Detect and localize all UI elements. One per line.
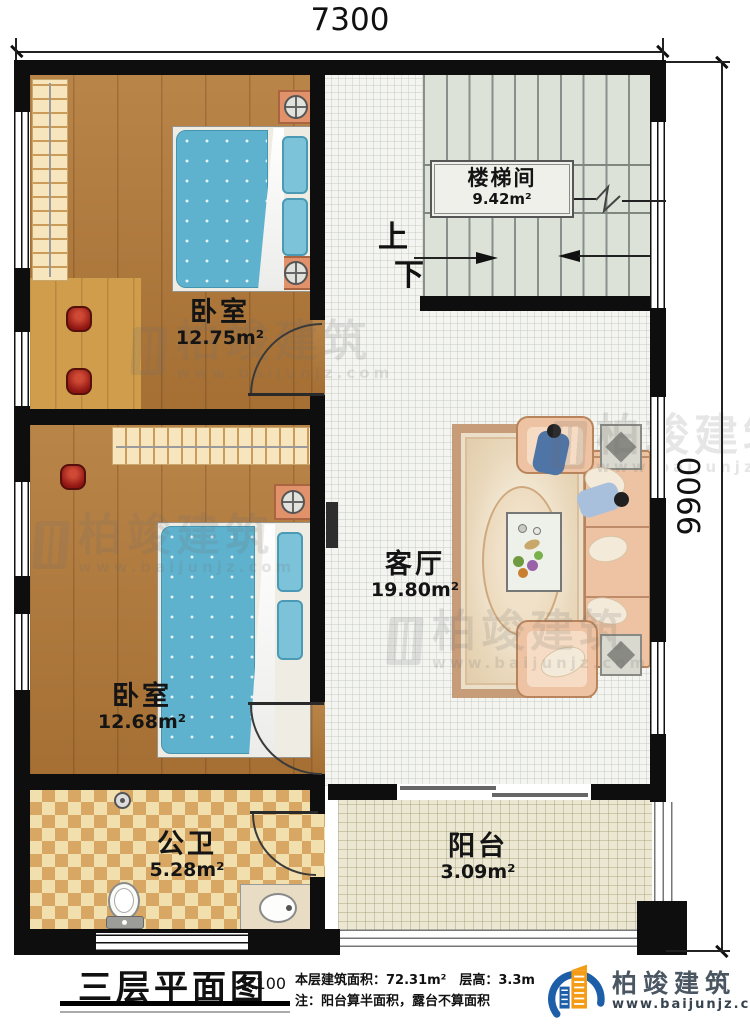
pillow [282,198,308,256]
stairwell-label: 楼梯间 9.42m² [432,167,572,207]
balcony-railing [338,929,638,947]
drawing-scale: 1:100 [240,974,286,993]
room-name: 客厅 [340,550,490,580]
window [650,642,666,734]
window [14,332,30,406]
side-table [600,424,642,470]
dimension-extension [666,950,730,952]
room-name: 阳台 [403,832,553,862]
room-name: 公卫 [112,830,262,860]
table-lamp-icon [605,431,636,462]
bedroom-top-label: 卧室 12.75m² [145,298,295,350]
wall-segment [328,784,398,800]
wall-segment [14,60,666,75]
wall-segment [650,498,666,642]
room-area: 19.80m² [340,580,490,601]
table-lamp-icon [607,641,635,669]
toilet-button [122,920,127,925]
brand-name: 柏竣建筑 [612,964,736,1000]
wardrobe [112,427,311,465]
title-underline-thin [60,1011,290,1013]
room-area: 3.09m² [403,862,553,883]
side-table [600,634,642,676]
stair-break-line [622,200,666,202]
wall-segment [310,877,325,931]
title-underline-thick [60,1001,290,1006]
nightstand [274,484,312,520]
window [14,482,30,576]
door-leaf [250,811,318,814]
room-area: 12.68m² [67,712,217,733]
dimension-line [721,62,723,952]
bed-mattress [176,130,268,288]
room-area: 9.42m² [432,191,572,208]
person-head [547,424,561,438]
sliding-door-panel [400,786,496,790]
living-room-label: 客厅 19.80m² [340,550,490,602]
balcony-railing [654,802,674,906]
shower-head [114,792,131,809]
floor-area-note: 注：阳台算半面积，露台不算面积 [295,990,490,1009]
dimension-top-label: 7300 [280,2,420,38]
floor-plan-page: 楼梯间 9.42m² 上 下 [0,0,750,1031]
faucet [286,905,292,911]
wall-segment [14,409,325,425]
room-area: 5.28m² [112,860,262,881]
wardrobe-rod [116,446,308,448]
wall-segment [310,74,325,320]
bathroom-label: 公卫 5.28m² [112,830,262,882]
window [650,122,666,308]
floor-area-info: 本层建筑面积：72.31m² 层高：3.3m [295,969,535,988]
brand-website: www.baijunjz.com [612,997,750,1012]
flower [534,551,543,560]
wall-segment [650,308,666,397]
wall-segment [650,60,666,122]
toilet-bowl-inner [114,888,134,913]
stair-arrow-left-icon [558,250,580,262]
bedroom-bottom-label: 卧室 12.68m² [67,682,217,734]
flower [518,568,528,578]
brand-logo-icon [544,962,608,1024]
tv [326,502,338,548]
stair-arrow-right-icon [476,252,498,264]
cup [518,524,527,533]
dimension-line [16,51,664,53]
stool [60,464,86,490]
person-head [614,492,629,507]
wardrobe [32,79,68,281]
wall-segment [14,774,325,790]
window [96,933,248,951]
dimension-right-label: 9900 [672,446,708,546]
dimension-extension [662,38,664,60]
room-name: 卧室 [145,298,295,328]
break-zigzag-icon [594,184,626,216]
stair-down-label: 下 [394,250,424,294]
toilet [106,882,144,930]
wardrobe-rod [49,83,51,277]
sink-vanity [240,884,311,931]
pillow [277,532,303,592]
dimension-extension [15,38,17,60]
window [14,614,30,690]
wall-segment [310,395,325,702]
wall-segment [420,296,666,311]
wall-segment [14,576,30,614]
room-name: 卧室 [67,682,217,712]
lamp-icon [284,261,308,285]
window [650,397,666,498]
lamp-icon [284,95,308,119]
dimension-extension [666,61,730,63]
pillow [282,136,308,194]
lamp-icon [281,490,305,514]
stool [66,368,92,395]
sliding-door-panel [492,793,588,797]
balcony-label: 阳台 3.09m² [403,832,553,884]
shower-nozzle [120,798,125,803]
wall-segment [14,690,30,955]
nightstand [278,90,314,124]
sliding-door [397,784,591,800]
wall-segment [590,784,666,800]
wall-segment [14,60,30,112]
room-area: 12.75m² [145,328,295,349]
wall-segment [14,268,30,332]
flower [527,560,538,571]
door-leaf [248,393,324,396]
stool [66,306,92,332]
pillow [277,600,303,660]
stair-direction-line [578,255,650,257]
balcony-column [637,901,687,955]
door-leaf [248,702,324,705]
stairwell-label-box: 楼梯间 9.42m² [430,160,574,218]
room-name: 楼梯间 [432,167,572,191]
flower [513,556,524,567]
window [14,112,30,268]
cup [533,527,541,535]
